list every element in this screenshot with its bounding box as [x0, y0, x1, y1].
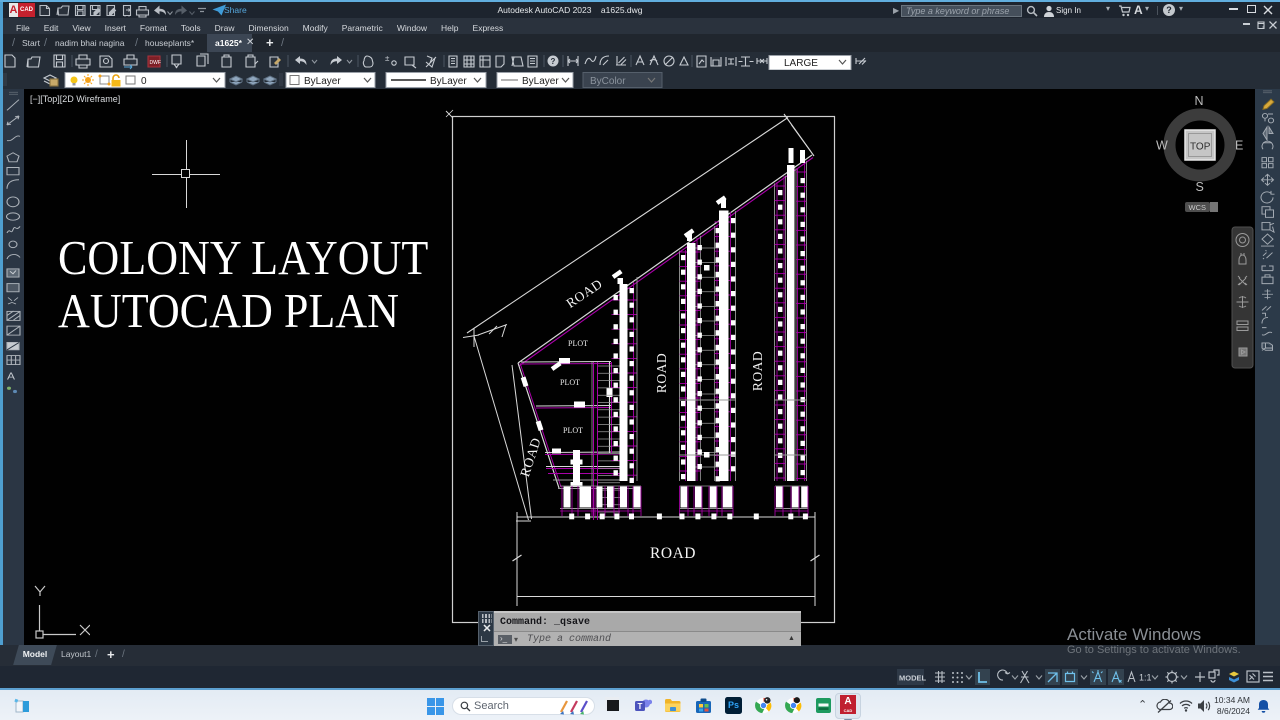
- svg-text:ROAD: ROAD: [650, 545, 696, 562]
- svg-text:WCS: WCS: [1189, 203, 1207, 212]
- svg-text:ROAD: ROAD: [750, 351, 765, 391]
- svg-text:E: E: [1235, 139, 1243, 153]
- svg-text:N: N: [1195, 94, 1204, 108]
- svg-text:ROAD: ROAD: [517, 436, 544, 479]
- svg-text:W: W: [1156, 139, 1168, 153]
- svg-text:ROAD: ROAD: [654, 353, 669, 393]
- svg-text:PLOT: PLOT: [560, 378, 580, 387]
- svg-text:S: S: [1196, 180, 1204, 194]
- svg-text:PLOT: PLOT: [563, 426, 583, 435]
- svg-text:TOP: TOP: [1190, 142, 1211, 153]
- svg-text:PLOT: PLOT: [568, 339, 588, 348]
